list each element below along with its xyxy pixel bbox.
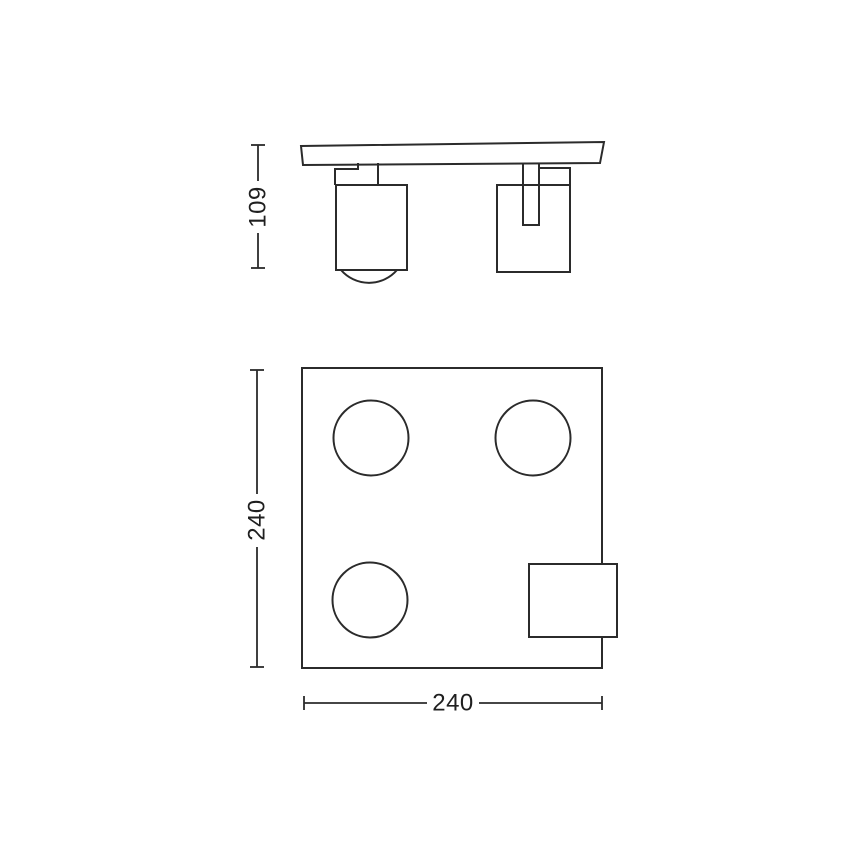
right-spot-head: [497, 163, 570, 272]
plan-height-dimension: 240: [244, 370, 271, 667]
left-spot-lens-arc: [341, 270, 397, 283]
technical-drawing-page: 109 240 240: [0, 0, 868, 868]
connector-box: [529, 564, 617, 637]
mounting-plate-side: [301, 142, 604, 165]
left-spot-body: [336, 185, 407, 270]
plan-width-label: 240: [432, 690, 474, 717]
left-spot-head: [335, 163, 407, 283]
plan-width-dimension: 240: [304, 690, 602, 717]
spot-opening-circle-top-left: [334, 401, 409, 476]
plan-view: [302, 368, 617, 668]
right-spot-bracket: [539, 168, 570, 185]
spot-opening-circle-bottom-left: [333, 563, 408, 638]
side-view: [301, 142, 604, 283]
right-spot-stem: [523, 163, 539, 225]
plan-height-label: 240: [244, 499, 271, 541]
technical-drawing-canvas: 109 240 240: [0, 0, 868, 868]
side-height-label: 109: [245, 186, 272, 228]
left-spot-bracket: [335, 163, 358, 185]
spot-opening-circle-top-right: [496, 401, 571, 476]
side-height-dimension: 109: [245, 145, 272, 268]
right-spot-body: [497, 185, 570, 272]
